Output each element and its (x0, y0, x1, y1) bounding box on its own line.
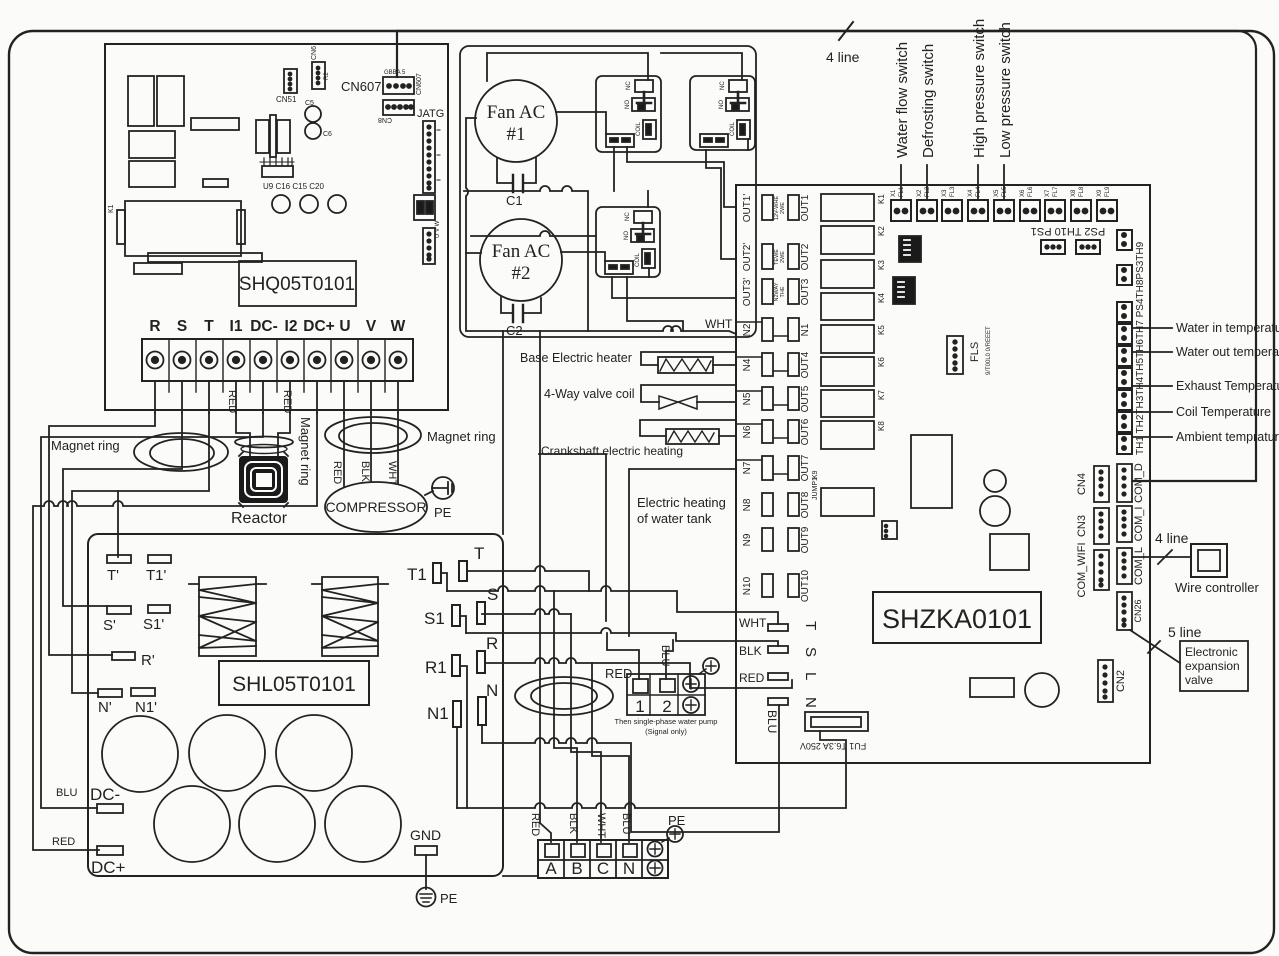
svg-text:N8: N8 (742, 498, 753, 511)
svg-text:FL2: FL2 (925, 186, 931, 197)
svg-text:X9: X9 (1097, 189, 1103, 197)
svg-text:OUT3': OUT3' (742, 278, 753, 307)
svg-text:T1': T1' (146, 567, 167, 584)
svg-text:PE: PE (668, 813, 686, 828)
svg-text:4 line: 4 line (1155, 530, 1189, 546)
svg-text:CN26: CN26 (1133, 599, 1143, 622)
svg-text:C1: C1 (506, 193, 523, 208)
svg-text:N9: N9 (742, 533, 753, 546)
svg-text:#1: #1 (507, 124, 526, 145)
svg-text:(Signal only): (Signal only) (645, 727, 687, 736)
svg-text:SHL05T0101: SHL05T0101 (232, 673, 356, 696)
svg-text:WHT: WHT (595, 813, 607, 838)
svg-text:X4: X4 (968, 189, 974, 197)
svg-text:OUT1: OUT1 (800, 194, 811, 221)
svg-text:CN6: CN6 (311, 46, 318, 60)
svg-text:GND: GND (410, 827, 441, 843)
svg-text:W: W (391, 318, 406, 335)
svg-text:NO: NO (719, 100, 725, 109)
svg-text:CN607: CN607 (416, 73, 423, 95)
svg-text:COIL: COIL (636, 121, 642, 136)
svg-text:K8: K8 (877, 421, 886, 431)
svg-text:NO: NO (624, 231, 630, 240)
svg-text:BLK: BLK (739, 644, 762, 658)
svg-text:R1: R1 (425, 658, 447, 677)
svg-text:S: S (802, 647, 819, 657)
svg-text:OUT1': OUT1' (742, 194, 753, 223)
svg-text:COIL: COIL (635, 252, 641, 267)
svg-text:N: N (623, 859, 635, 878)
svg-text:FL9: FL9 (1105, 186, 1111, 197)
svg-text:S1': S1' (143, 616, 164, 633)
svg-text:Reactor: Reactor (231, 510, 288, 527)
svg-text:X8: X8 (1071, 189, 1077, 197)
svg-text:CN8: CN8 (378, 116, 392, 123)
svg-text:Water flow switch: Water flow switch (894, 42, 911, 158)
svg-text:expansion: expansion (1185, 659, 1240, 673)
svg-text:Coil Temperature: Coil Temperature (1176, 405, 1271, 419)
svg-text:SHQ05T0101: SHQ05T0101 (239, 274, 355, 295)
svg-text:Exhaust Temperature: Exhaust Temperature (1176, 379, 1279, 393)
svg-text:PS2 TH10 PS1: PS2 TH10 PS1 (1031, 225, 1105, 237)
svg-text:N4: N4 (742, 358, 753, 371)
svg-text:BLU: BLU (659, 645, 671, 666)
svg-text:BLU: BLU (56, 787, 77, 799)
svg-text:FL1: FL1 (899, 186, 905, 197)
svg-text:High pressure switch: High pressure switch (971, 19, 988, 158)
svg-text:COM_L: COM_L (1133, 547, 1145, 585)
svg-text:COM_D: COM_D (1133, 463, 1145, 503)
svg-text:BLU: BLU (620, 813, 632, 834)
svg-text:COM_I: COM_I (1133, 507, 1145, 542)
svg-text:FL3: FL3 (950, 186, 956, 197)
svg-text:N': N' (98, 699, 112, 716)
svg-text:R2: R2 (324, 72, 330, 80)
svg-text:SHZKA0101: SHZKA0101 (882, 604, 1032, 634)
svg-text:JATG: JATG (417, 108, 444, 120)
svg-text:OUT3: OUT3 (800, 278, 811, 305)
svg-text:FL6: FL6 (1028, 186, 1034, 197)
svg-text:I1: I1 (230, 318, 243, 335)
svg-text:N: N (486, 681, 498, 700)
svg-text:N1: N1 (800, 323, 811, 336)
svg-text:WHT: WHT (739, 616, 767, 630)
svg-text:CN3: CN3 (1076, 515, 1088, 537)
svg-text:N7: N7 (742, 461, 753, 474)
svg-text:FLS: FLS (969, 342, 981, 362)
svg-text:OUT6: OUT6 (800, 418, 811, 445)
svg-text:T: T (474, 544, 484, 563)
svg-text:CN607: CN607 (341, 79, 381, 94)
svg-text:T1: T1 (407, 565, 427, 584)
svg-text:DC-: DC- (90, 785, 120, 804)
svg-text:2WE: 2WE (780, 251, 786, 263)
svg-text:NC: NC (625, 212, 631, 221)
svg-text:OUT2': OUT2' (742, 243, 753, 272)
svg-text:Fan AC: Fan AC (487, 102, 546, 123)
svg-text:Ambient temprature: Ambient temprature (1176, 430, 1279, 444)
svg-text:K9: K9 (812, 470, 819, 479)
svg-text:T': T' (107, 567, 119, 584)
svg-text:of water tank: of water tank (637, 511, 712, 526)
svg-text:R': R' (141, 652, 155, 669)
svg-text:valve: valve (1185, 673, 1213, 687)
svg-text:N10: N10 (742, 576, 753, 595)
svg-text:K3: K3 (877, 260, 886, 270)
svg-text:Low pressure switch: Low pressure switch (997, 22, 1014, 158)
svg-text:THE: THE (780, 286, 786, 297)
svg-text:U V W: U V W (435, 220, 441, 238)
svg-text:DC+: DC+ (91, 858, 126, 877)
svg-text:9/T00L0 0/REEET: 9/T00L0 0/REEET (986, 326, 992, 375)
svg-text:N1': N1' (135, 699, 157, 716)
svg-text:Fan AC: Fan AC (492, 241, 551, 262)
svg-text:Electric heating: Electric heating (637, 495, 726, 510)
svg-text:N5: N5 (742, 392, 753, 405)
svg-text:K1: K1 (108, 204, 115, 213)
svg-text:2WE: 2WE (780, 202, 786, 214)
svg-text:OUT8: OUT8 (800, 491, 811, 518)
svg-text:CN2: CN2 (1115, 670, 1127, 692)
svg-text:CN51: CN51 (276, 95, 297, 104)
svg-text:C5: C5 (305, 100, 314, 107)
svg-text:Electronic: Electronic (1185, 645, 1238, 659)
svg-text:U9 C16 C15 C20: U9 C16 C15 C20 (263, 182, 324, 191)
svg-text:X3: X3 (942, 189, 948, 197)
svg-text:X5: X5 (994, 189, 1000, 197)
svg-text:CN4: CN4 (1076, 473, 1088, 495)
svg-text:NC: NC (720, 81, 726, 90)
svg-text:X1: X1 (891, 189, 897, 197)
svg-text:S1: S1 (424, 609, 445, 628)
svg-text:OUT4: OUT4 (800, 351, 811, 378)
svg-text:BLK: BLK (359, 461, 371, 482)
svg-text:Water in temperature: Water in temperature (1176, 321, 1279, 335)
svg-text:TH1 TH2TH3TH4TH5TH6TH7 PS4TH8P: TH1 TH2TH3TH4TH5TH6TH7 PS4TH8PS3TH9 (1135, 241, 1146, 455)
svg-text:DC+: DC+ (303, 318, 334, 335)
svg-text:K2: K2 (877, 226, 886, 236)
svg-text:PE: PE (434, 505, 452, 520)
svg-text:RED: RED (281, 390, 293, 413)
svg-text:FL8: FL8 (1079, 186, 1085, 197)
svg-text:RED: RED (605, 666, 632, 681)
svg-text:BLU: BLU (765, 710, 779, 733)
svg-text:Defrosting switch: Defrosting switch (920, 44, 937, 158)
svg-text:FL7: FL7 (1053, 186, 1059, 197)
svg-text:R: R (486, 634, 498, 653)
svg-text:RED: RED (331, 461, 343, 484)
svg-text:JUMP1: JUMP1 (812, 477, 819, 500)
svg-text:Crankshaft electric heating: Crankshaft electric heating (541, 444, 683, 458)
svg-text:GBBA 5: GBBA 5 (384, 70, 406, 76)
svg-text:T: T (802, 621, 819, 630)
svg-text:OUT2: OUT2 (800, 243, 811, 270)
svg-text:RED: RED (52, 836, 75, 848)
svg-text:L: L (802, 672, 819, 680)
svg-text:T: T (204, 318, 214, 335)
svg-text:5 line: 5 line (1168, 624, 1202, 640)
svg-text:WHT: WHT (705, 317, 733, 331)
svg-text:Water out temperature: Water out temperature (1176, 345, 1279, 359)
svg-text:1: 1 (635, 697, 644, 716)
svg-text:NC: NC (626, 81, 632, 90)
svg-text:PE: PE (440, 891, 458, 906)
svg-text:DC-: DC- (250, 318, 278, 335)
svg-text:S': S' (103, 617, 116, 634)
svg-text:Magnet ring: Magnet ring (427, 429, 496, 444)
svg-text:N6: N6 (742, 425, 753, 438)
svg-text:Magnet ring: Magnet ring (298, 417, 313, 486)
svg-text:I2: I2 (285, 318, 298, 335)
svg-text:K5: K5 (877, 325, 886, 335)
svg-text:Base Electric heater: Base Electric heater (520, 351, 632, 365)
svg-text:S: S (487, 585, 498, 604)
svg-text:OUT7: OUT7 (800, 454, 811, 481)
svg-text:K1: K1 (877, 194, 886, 204)
svg-text:R: R (149, 318, 160, 335)
svg-text:OUT9: OUT9 (800, 526, 811, 553)
svg-text:A: A (545, 859, 557, 878)
svg-text:K6: K6 (877, 357, 886, 367)
svg-text:BLK: BLK (567, 813, 579, 834)
svg-text:Magnet ring: Magnet ring (51, 438, 120, 453)
svg-text:B: B (571, 859, 582, 878)
svg-text:COMPRESSOR: COMPRESSOR (325, 499, 426, 515)
svg-text:RED: RED (226, 390, 238, 413)
svg-text:2: 2 (662, 697, 671, 716)
svg-text:COM_WIFI: COM_WIFI (1076, 543, 1088, 598)
svg-text:NO: NO (625, 100, 631, 109)
svg-text:X7: X7 (1045, 189, 1051, 197)
svg-text:RED: RED (739, 671, 765, 685)
svg-text:COIL: COIL (730, 121, 736, 136)
svg-text:C: C (597, 859, 609, 878)
svg-text:Then single-phase water pump: Then single-phase water pump (615, 717, 718, 726)
svg-text:Wire controller: Wire controller (1175, 580, 1259, 595)
svg-text:OUT5: OUT5 (800, 385, 811, 412)
svg-text:X6: X6 (1020, 189, 1026, 197)
svg-text:N2: N2 (742, 323, 753, 336)
svg-text:C6: C6 (323, 131, 332, 138)
svg-text:N: N (802, 697, 819, 708)
svg-text:FU1 T6.3A 250V: FU1 T6.3A 250V (800, 741, 866, 751)
svg-text:V: V (366, 318, 377, 335)
svg-text:X2: X2 (917, 189, 923, 197)
svg-text:RED: RED (529, 813, 541, 836)
svg-text:#2: #2 (512, 263, 531, 284)
svg-text:K7: K7 (877, 390, 886, 400)
svg-text:FL4: FL4 (976, 186, 982, 197)
svg-text:K4: K4 (877, 293, 886, 303)
svg-text:OUT10: OUT10 (800, 569, 811, 602)
svg-text:S: S (177, 318, 187, 335)
svg-text:4-Way valve coil: 4-Way valve coil (544, 387, 635, 401)
svg-text:4 line: 4 line (826, 49, 860, 65)
svg-text:U: U (339, 318, 350, 335)
svg-text:FL5: FL5 (1002, 186, 1008, 197)
svg-text:N1: N1 (427, 704, 449, 723)
